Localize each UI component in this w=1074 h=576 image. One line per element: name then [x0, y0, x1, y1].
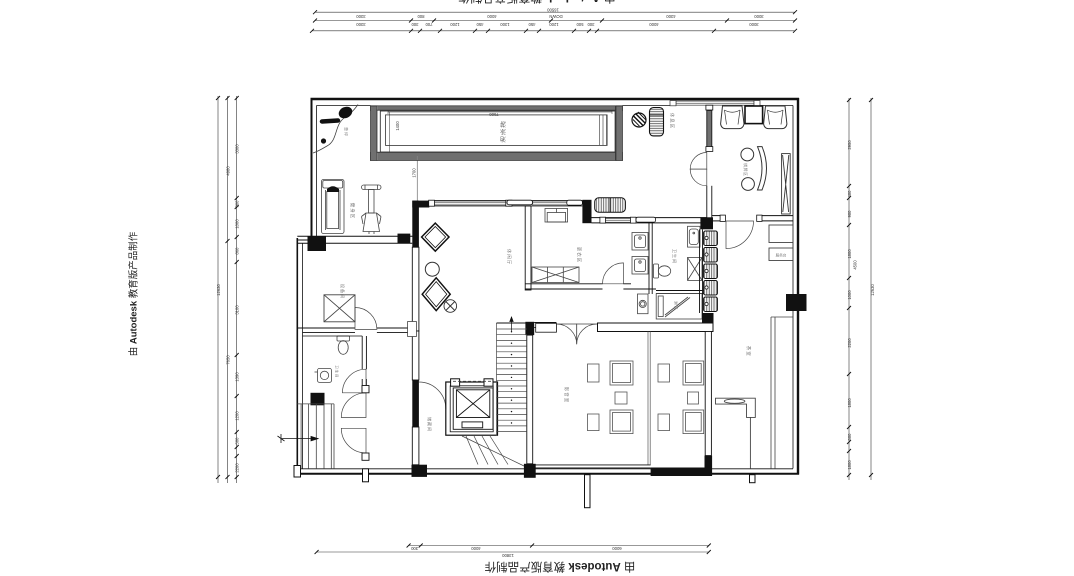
svg-text:400: 400 — [847, 190, 852, 198]
svg-text:服务台: 服务台 — [776, 253, 787, 258]
svg-text:影: 影 — [563, 387, 570, 392]
svg-text:1000: 1000 — [847, 290, 852, 300]
svg-text:淋: 淋 — [674, 301, 679, 305]
svg-text:区: 区 — [577, 258, 582, 263]
svg-text:300: 300 — [411, 22, 419, 27]
svg-text:3100: 3100 — [235, 305, 240, 315]
svg-text:900: 900 — [847, 210, 852, 218]
svg-text:1300: 1300 — [500, 22, 510, 27]
svg-text:间: 间 — [339, 294, 346, 298]
svg-text:6000: 6000 — [612, 546, 622, 551]
svg-text:区: 区 — [743, 172, 747, 176]
svg-text:区: 区 — [670, 124, 675, 129]
svg-text:500: 500 — [235, 437, 240, 445]
svg-text:间: 间 — [334, 374, 339, 378]
svg-text:间: 间 — [426, 427, 433, 431]
svg-text:12630: 12630 — [216, 284, 221, 296]
svg-text:棋: 棋 — [743, 163, 748, 167]
svg-text:1800: 1800 — [847, 460, 852, 470]
svg-text:1400: 1400 — [395, 121, 400, 131]
svg-text:2950: 2950 — [847, 140, 852, 150]
svg-text:2200: 2200 — [847, 338, 852, 348]
svg-text:泳: 泳 — [500, 127, 506, 135]
svg-text:3300: 3300 — [356, 22, 366, 27]
svg-text:500: 500 — [847, 433, 852, 441]
svg-text:800: 800 — [417, 14, 425, 19]
svg-text:由 Autodesk 教育版产品制作: 由 Autodesk 教育版产品制作 — [484, 560, 635, 574]
svg-text:池: 池 — [500, 135, 506, 143]
svg-text:860: 860 — [235, 247, 240, 255]
svg-text:衣: 衣 — [576, 252, 583, 257]
svg-text:4000: 4000 — [487, 14, 497, 19]
svg-text:室: 室 — [564, 398, 570, 403]
svg-text:由 Autodesk 教育版产品制作: 由 Autodesk 教育版产品制作 — [458, 0, 615, 6]
svg-text:DOWN: DOWN — [549, 14, 562, 19]
svg-text:草: 草 — [344, 127, 350, 131]
svg-text:闲: 闲 — [506, 254, 513, 259]
svg-text:室: 室 — [746, 351, 752, 356]
svg-text:500: 500 — [576, 22, 584, 27]
svg-text:1200: 1200 — [235, 411, 240, 421]
svg-text:浴: 浴 — [674, 306, 679, 310]
svg-text:13800: 13800 — [502, 553, 514, 558]
svg-text:由 Autodesk 教育版产品制作: 由 Autodesk 教育版产品制作 — [128, 231, 140, 356]
svg-text:1800: 1800 — [847, 398, 852, 408]
svg-text:厅: 厅 — [507, 260, 512, 265]
svg-text:1800: 1800 — [847, 249, 852, 259]
svg-text:7600: 7600 — [489, 112, 499, 117]
svg-text:4000: 4000 — [649, 22, 659, 27]
svg-text:1000: 1000 — [235, 219, 240, 229]
svg-text:3000: 3000 — [754, 14, 764, 19]
svg-text:4980: 4980 — [226, 166, 231, 176]
svg-text:4300: 4300 — [666, 14, 676, 19]
svg-text:休: 休 — [506, 249, 513, 254]
svg-text:储: 储 — [426, 417, 433, 421]
svg-text:12630: 12630 — [870, 284, 875, 296]
svg-text:3300: 3300 — [235, 144, 240, 154]
svg-text:音: 音 — [563, 392, 570, 397]
svg-text:身: 身 — [349, 208, 356, 213]
svg-text:450: 450 — [528, 22, 536, 27]
svg-text:卫: 卫 — [672, 249, 677, 253]
svg-text:300: 300 — [587, 22, 595, 27]
svg-text:450: 450 — [476, 22, 484, 27]
svg-text:生: 生 — [672, 254, 678, 258]
svg-text:4000: 4000 — [471, 546, 481, 551]
svg-text:2200: 2200 — [235, 463, 240, 473]
svg-text:1200: 1200 — [450, 22, 460, 27]
svg-text:间: 间 — [671, 259, 678, 263]
svg-text:区: 区 — [350, 214, 355, 219]
svg-text:1200: 1200 — [549, 22, 559, 27]
svg-text:16500: 16500 — [547, 8, 559, 13]
svg-text:3300: 3300 — [356, 14, 366, 19]
svg-text:300: 300 — [410, 546, 418, 551]
svg-text:300: 300 — [235, 200, 240, 208]
svg-text:7650: 7650 — [226, 355, 231, 365]
svg-text:牌: 牌 — [743, 168, 748, 172]
svg-text:700: 700 — [425, 22, 433, 27]
svg-text:1390: 1390 — [235, 372, 240, 382]
svg-text:茶: 茶 — [746, 346, 752, 351]
svg-text:休: 休 — [669, 113, 676, 118]
svg-text:健: 健 — [349, 203, 356, 208]
svg-text:3000: 3000 — [749, 22, 759, 27]
svg-text:4500: 4500 — [853, 260, 858, 270]
svg-text:游: 游 — [500, 120, 506, 128]
svg-text:1700: 1700 — [412, 168, 417, 178]
svg-text:坪: 坪 — [344, 132, 350, 136]
svg-text:息: 息 — [670, 118, 676, 123]
